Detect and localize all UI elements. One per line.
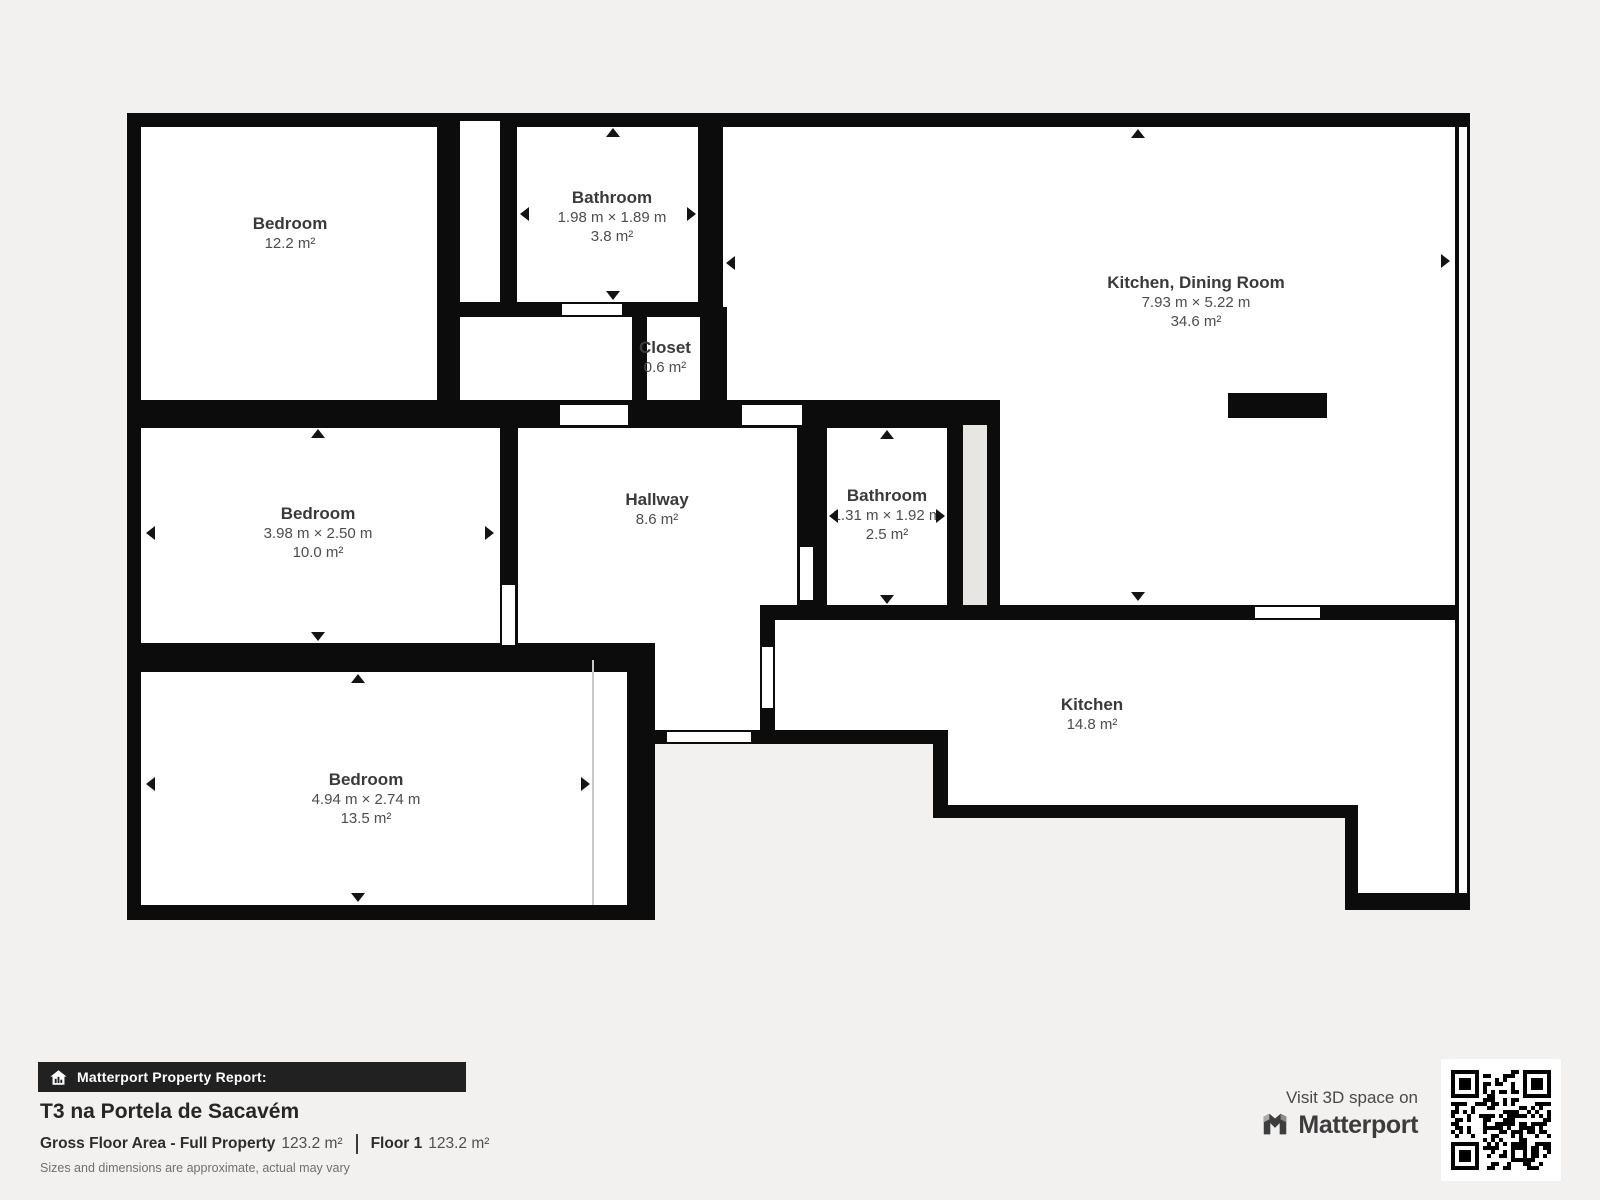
room-kitchen-floor [948,730,1345,805]
room-dimensions: 1.31 m × 1.92 m [833,506,942,525]
door-opening [560,405,628,425]
report-banner: Matterport Property Report: [38,1062,466,1092]
door-opening [1255,607,1320,618]
dimension-arrow-left-icon [146,777,155,791]
room-name: Kitchen, Dining Room [1107,272,1285,293]
room-kitchen-dining-floor [1000,127,1455,605]
qr-code [1441,1059,1561,1181]
wall [1345,893,1470,910]
dimension-arrow-up-icon [1131,129,1145,138]
visit-3d-text: Visit 3D space on [1286,1088,1418,1108]
wall [698,113,723,307]
room-name: Closet [639,337,691,358]
room-label-closet: Closet 0.6 m² [639,337,691,377]
room-area: 12.2 m² [253,234,328,253]
wall [933,805,1358,818]
room-name: Hallway [625,489,688,510]
matterport-brand: Matterport [1260,1110,1418,1140]
room-area: 3.8 m² [558,227,667,246]
dimension-arrow-up-icon [606,128,620,137]
dimension-arrow-down-icon [880,595,894,604]
dimension-arrow-right-icon [687,207,696,221]
room-name: Bedroom [264,503,373,524]
room-area: 13.5 m² [312,809,421,828]
gfa-label: Gross Floor Area - Full Property [40,1135,275,1153]
room-area: 2.5 m² [833,525,942,544]
matterport-logo-icon [1260,1110,1290,1140]
room-label-bathroom-1: Bathroom 1.98 m × 1.89 m 3.8 m² [558,187,667,246]
duct [460,121,500,302]
dimension-arrow-right-icon [936,509,945,523]
property-title: T3 na Portela de Sacavém [40,1100,299,1124]
wall [437,113,460,400]
dimension-arrow-down-icon [351,893,365,902]
wall [627,658,655,920]
wall [127,643,655,672]
divider [356,1134,358,1154]
room-name: Bedroom [312,769,421,790]
dimension-arrow-left-icon [146,526,155,540]
room-name: Kitchen [1061,694,1123,715]
dimension-arrow-up-icon [880,430,894,439]
room-area: 14.8 m² [1061,715,1123,734]
wall [500,113,517,303]
report-banner-label: Matterport Property Report: [77,1069,267,1085]
wall [947,418,963,605]
room-label-kitchen: Kitchen 14.8 m² [1061,694,1123,734]
dimension-arrow-down-icon [311,632,325,641]
disclaimer-note: Sizes and dimensions are approximate, ac… [40,1161,350,1175]
room-area: 34.6 m² [1107,312,1285,331]
dimension-arrow-right-icon [581,777,590,791]
room-label-bedroom-1: Bedroom 12.2 m² [253,213,328,253]
entry-door-opening [667,732,751,742]
window-wall-line [1467,113,1470,910]
room-kitchen-floor [1345,620,1455,893]
dimension-arrow-up-icon [351,674,365,683]
room-label-bedroom-3: Bedroom 4.94 m × 2.74 m 13.5 m² [312,769,421,828]
wall [760,730,948,744]
wall [700,307,727,401]
shaft [963,425,987,605]
room-name: Bedroom [253,213,328,234]
wall [127,905,655,920]
wall [127,113,141,920]
wall [987,418,1000,605]
wall [127,113,1470,127]
door-opening [502,585,515,645]
dimension-arrow-left-icon [829,509,838,523]
floor-plan-report: Bedroom 12.2 m² Bathroom 1.98 m × 1.89 m… [0,0,1600,1200]
window-glass [1459,127,1467,893]
room-label-bathroom-2: Bathroom 1.31 m × 1.92 m 2.5 m² [833,485,942,544]
dimension-arrow-left-icon [726,256,735,270]
room-vestibule-floor [460,317,632,400]
wall [760,605,1455,620]
house-chart-icon [50,1069,67,1086]
counter-island [1228,393,1327,418]
dimension-arrow-right-icon [485,526,494,540]
room-label-kitchen-dining: Kitchen, Dining Room 7.93 m × 5.22 m 34.… [1107,272,1285,331]
gross-floor-area-row: Gross Floor Area - Full Property 123.2 m… [40,1134,489,1154]
room-dimensions: 3.98 m × 2.50 m [264,524,373,543]
door-opening [742,405,802,425]
door-opening [800,547,813,600]
matterport-wordmark: Matterport [1298,1111,1418,1140]
dimension-arrow-up-icon [311,429,325,438]
room-kitchen-dining-floor [723,127,1000,400]
dimension-arrow-left-icon [520,207,529,221]
gfa-value: 123.2 m² [281,1135,342,1153]
room-dimensions: 1.98 m × 1.89 m [558,208,667,227]
closet-divider-line [592,660,594,905]
dimension-arrow-down-icon [1131,592,1145,601]
door-opening [762,647,773,708]
room-label-bedroom-2: Bedroom 3.98 m × 2.50 m 10.0 m² [264,503,373,562]
dimension-arrow-right-icon [1441,254,1450,268]
door-opening [562,304,622,315]
room-dimensions: 7.93 m × 5.22 m [1107,293,1285,312]
room-name: Bathroom [558,187,667,208]
floor-value: 123.2 m² [428,1135,489,1153]
floor-label: Floor 1 [371,1135,423,1153]
room-label-hallway: Hallway 8.6 m² [625,489,688,529]
room-dimensions: 4.94 m × 2.74 m [312,790,421,809]
room-area: 0.6 m² [639,358,691,377]
room-name: Bathroom [833,485,942,506]
room-area: 10.0 m² [264,543,373,562]
dimension-arrow-down-icon [606,291,620,300]
room-area: 8.6 m² [625,510,688,529]
room-bedroom-1-floor [140,127,437,400]
